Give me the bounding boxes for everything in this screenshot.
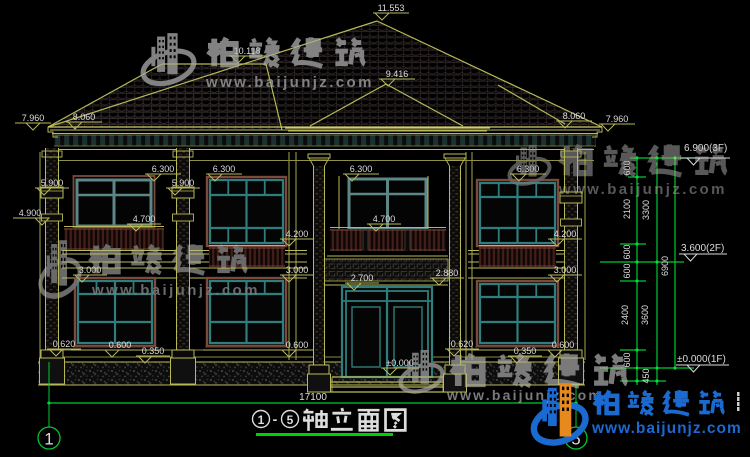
svg-text:0.620: 0.620 <box>53 339 76 349</box>
svg-text:0.600: 0.600 <box>286 340 309 350</box>
svg-text:2.700: 2.700 <box>351 273 374 283</box>
svg-text:7.960: 7.960 <box>22 113 45 123</box>
svg-text:1: 1 <box>258 413 265 427</box>
svg-text:2.880: 2.880 <box>436 268 459 278</box>
svg-text:www.baijunjz.com: www.baijunjz.com <box>558 181 727 198</box>
svg-text:www.baijunjz.com: www.baijunjz.com <box>91 282 260 299</box>
svg-text:450: 450 <box>641 368 651 383</box>
svg-text:4.200: 4.200 <box>286 229 309 239</box>
svg-text:5.900: 5.900 <box>172 178 195 188</box>
svg-text:6900: 6900 <box>660 256 670 276</box>
svg-text:5: 5 <box>287 413 294 427</box>
svg-text:±0.000(1F): ±0.000(1F) <box>677 354 726 365</box>
svg-text:1: 1 <box>44 430 53 449</box>
svg-text:6.300: 6.300 <box>152 164 175 174</box>
svg-text:0.350: 0.350 <box>142 346 165 356</box>
svg-text:3.600(2F): 3.600(2F) <box>681 243 724 254</box>
svg-text:4.700: 4.700 <box>373 214 396 224</box>
svg-text:8.060: 8.060 <box>73 112 96 122</box>
svg-text:3.000: 3.000 <box>554 265 577 275</box>
svg-text:www.baijunjz.com: www.baijunjz.com <box>446 387 603 403</box>
svg-text:5.900: 5.900 <box>41 178 64 188</box>
svg-text:4.700: 4.700 <box>133 214 156 224</box>
svg-text:-: - <box>273 411 278 427</box>
svg-text:8.060: 8.060 <box>563 111 586 121</box>
svg-text:600: 600 <box>622 244 632 259</box>
svg-text:0.350: 0.350 <box>514 346 537 356</box>
svg-text:2400: 2400 <box>620 305 630 325</box>
svg-text:0.600: 0.600 <box>109 340 132 350</box>
svg-text:3300: 3300 <box>641 200 651 220</box>
svg-text:www.baijunjz.com: www.baijunjz.com <box>205 74 374 91</box>
svg-text:7.960: 7.960 <box>606 114 629 124</box>
svg-text:0.620: 0.620 <box>451 339 474 349</box>
svg-text:3.000: 3.000 <box>286 265 309 275</box>
svg-text:9.416: 9.416 <box>386 69 409 79</box>
svg-text:4.900: 4.900 <box>19 208 42 218</box>
svg-text:600: 600 <box>622 263 632 278</box>
svg-text:0.600: 0.600 <box>552 340 575 350</box>
svg-text:6.300: 6.300 <box>213 164 236 174</box>
svg-text:www.baijunjz.com: www.baijunjz.com <box>591 420 742 437</box>
svg-text:3600: 3600 <box>640 305 650 325</box>
svg-text:2100: 2100 <box>622 199 632 219</box>
svg-text:11.553: 11.553 <box>378 3 405 13</box>
svg-text:4.200: 4.200 <box>554 229 577 239</box>
svg-text:6.300: 6.300 <box>350 164 373 174</box>
svg-text:17100: 17100 <box>299 392 327 403</box>
